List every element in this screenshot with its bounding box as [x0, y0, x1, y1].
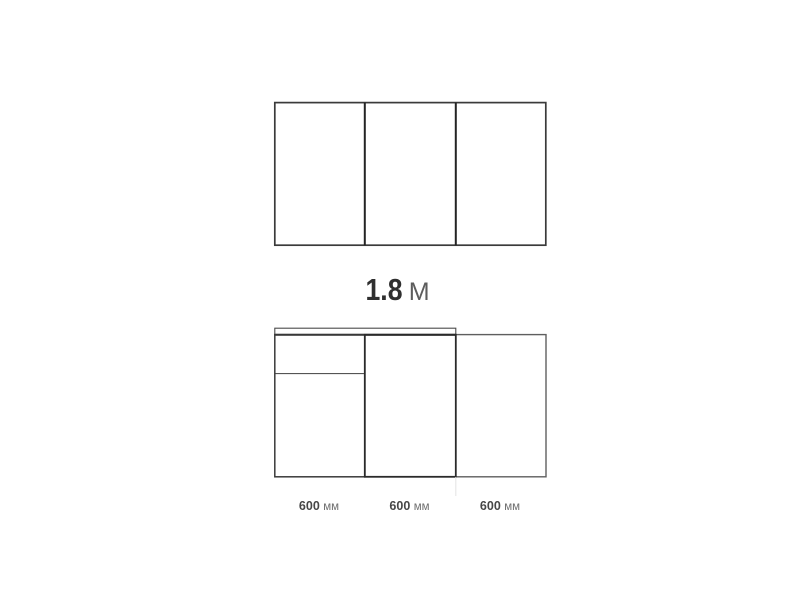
svg-text:М: М: [409, 278, 430, 306]
svg-text:600 мм: 600 мм: [480, 499, 520, 513]
svg-text:600 мм: 600 мм: [389, 499, 429, 513]
svg-text:1.8: 1.8: [366, 272, 403, 307]
svg-text:600 мм: 600 мм: [299, 499, 339, 513]
